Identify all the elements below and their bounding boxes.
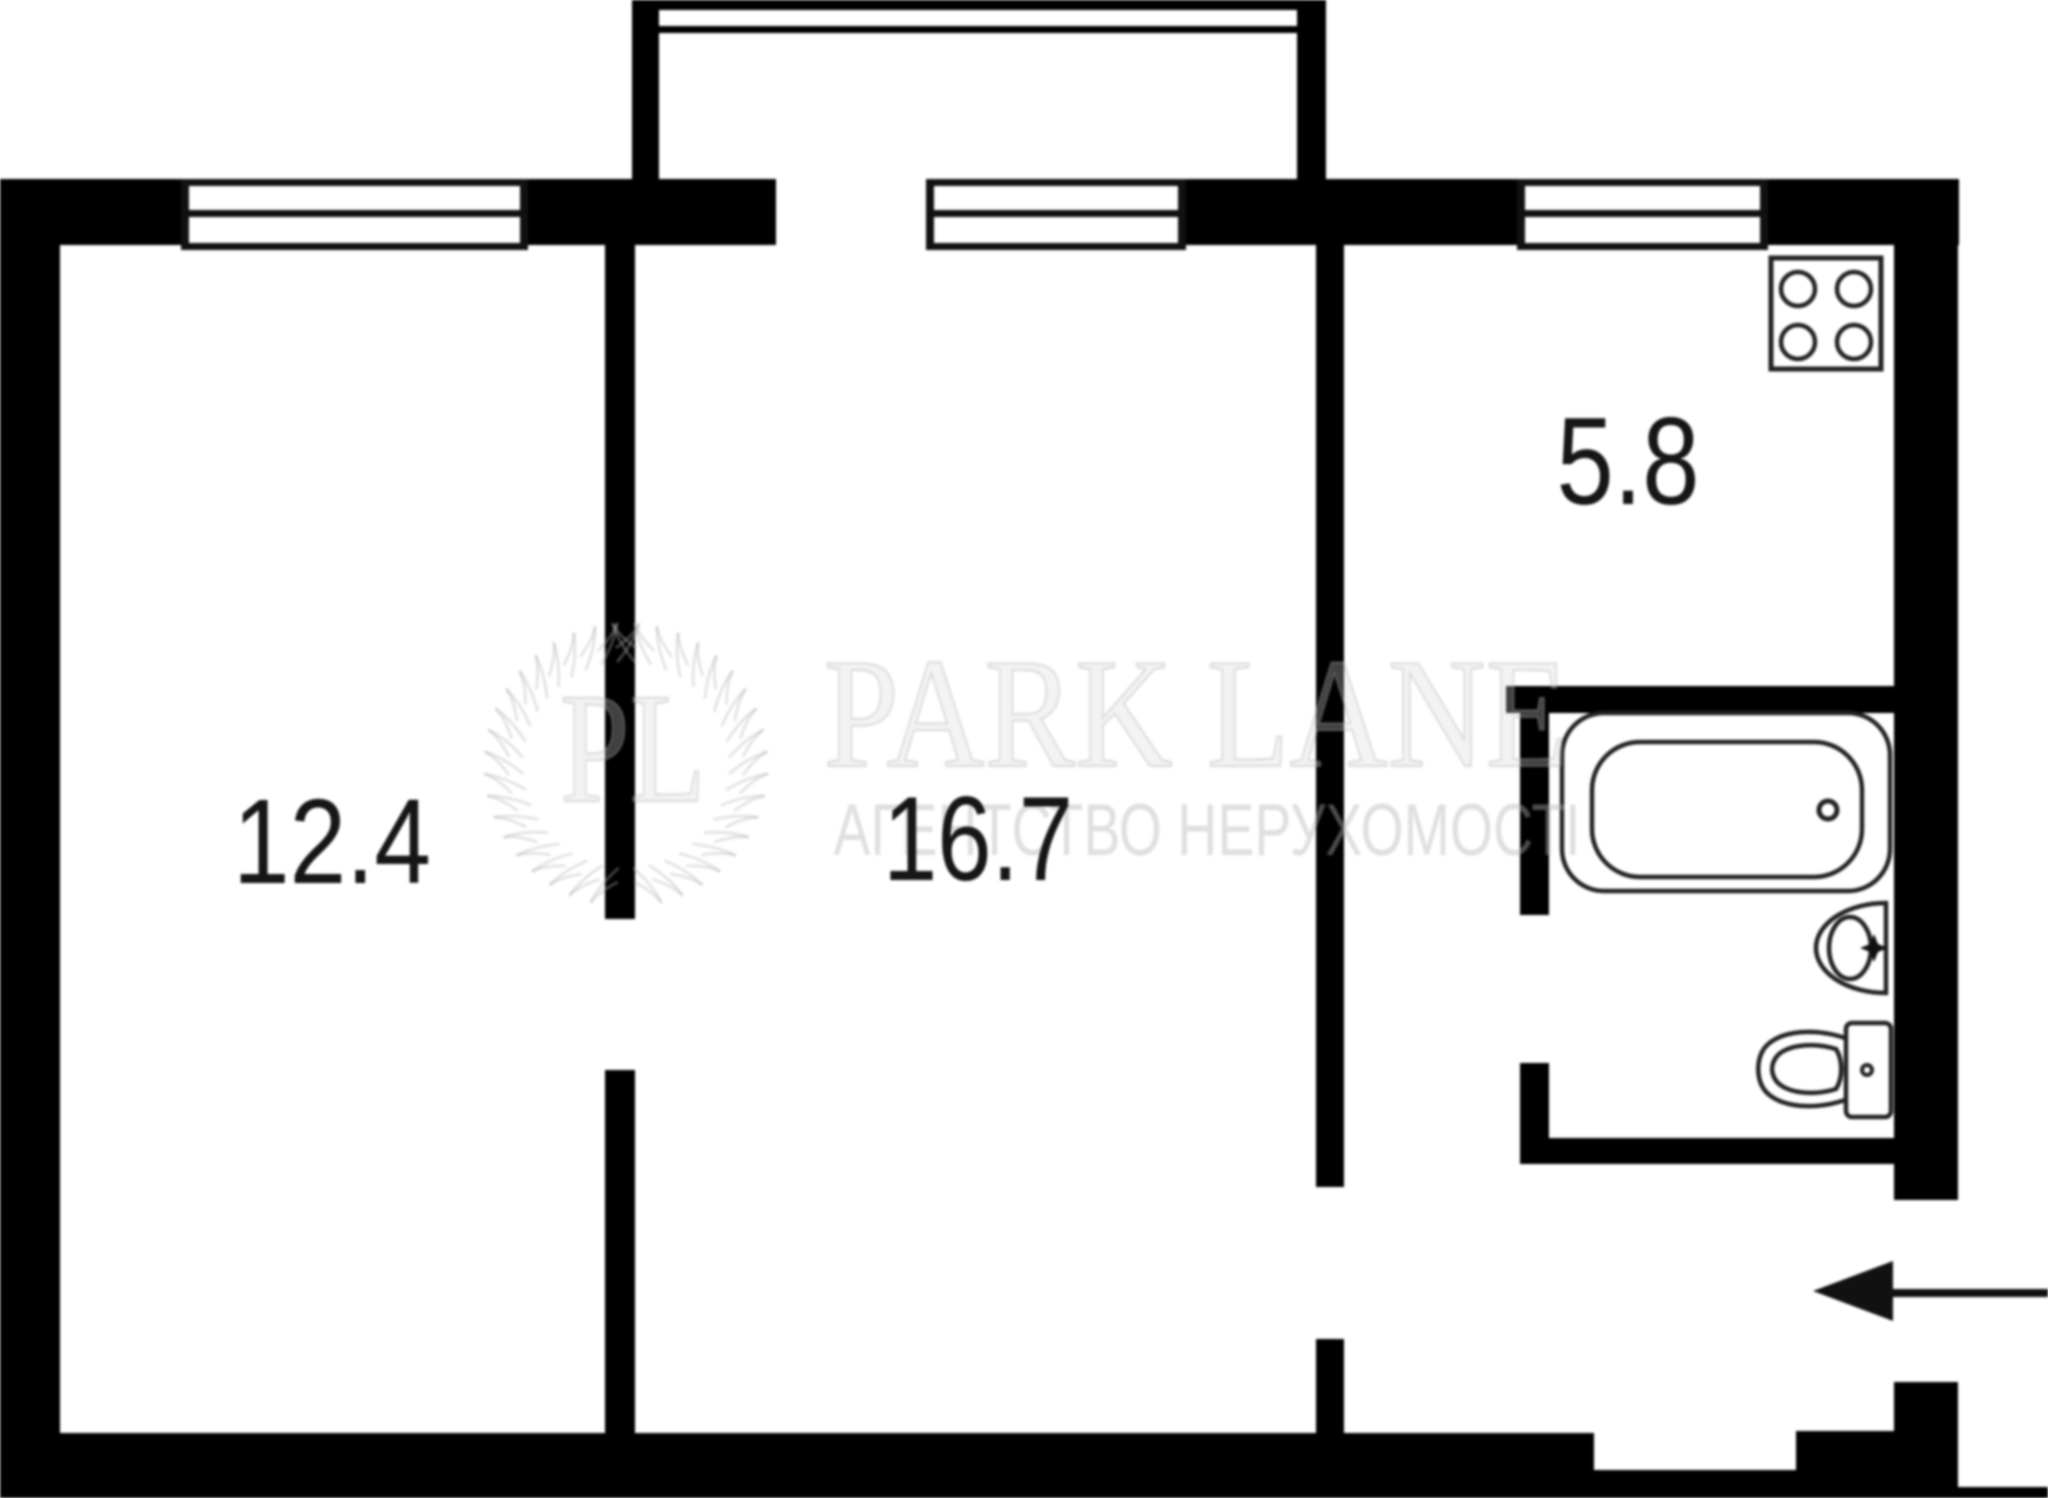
svg-text:16.7: 16.7: [883, 772, 1073, 906]
svg-text:5.8: 5.8: [1557, 393, 1700, 531]
svg-text:12.4: 12.4: [233, 773, 431, 909]
svg-text:PL: PL: [560, 661, 706, 836]
